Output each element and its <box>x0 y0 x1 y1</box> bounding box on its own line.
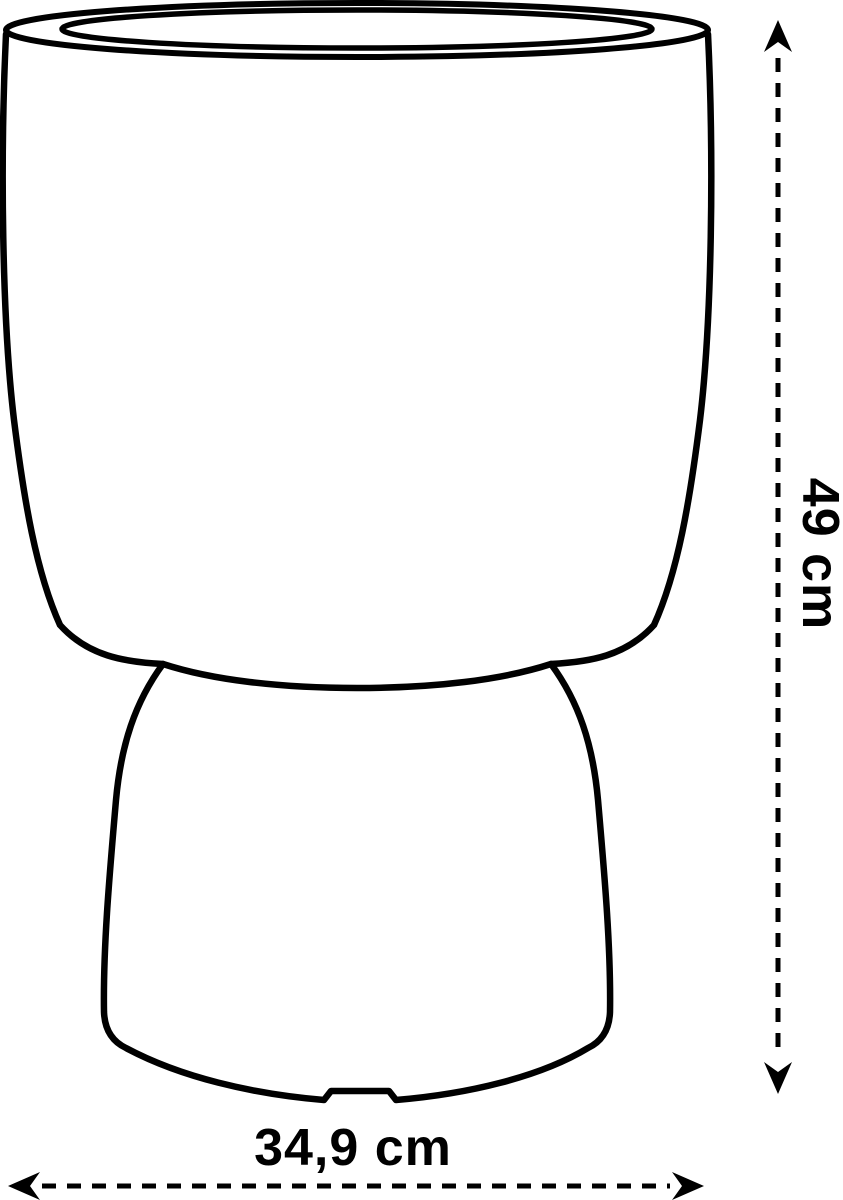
pot-rim-inner-ellipse <box>62 10 652 48</box>
arrow-left-icon <box>8 1172 40 1200</box>
pot-dimension-diagram: 49 cm 34,9 cm <box>0 0 843 1200</box>
arrow-right-icon <box>672 1172 704 1200</box>
pot-base-outline <box>104 664 610 1100</box>
arrow-up-icon <box>764 20 792 52</box>
width-dimension-label: 34,9 cm <box>254 1119 452 1177</box>
pot-dimension-svg: 49 cm 34,9 cm <box>0 0 843 1200</box>
arrow-down-icon <box>764 1062 792 1094</box>
pot-bowl-outline <box>3 34 712 688</box>
height-dimension-label: 49 cm <box>791 478 843 630</box>
